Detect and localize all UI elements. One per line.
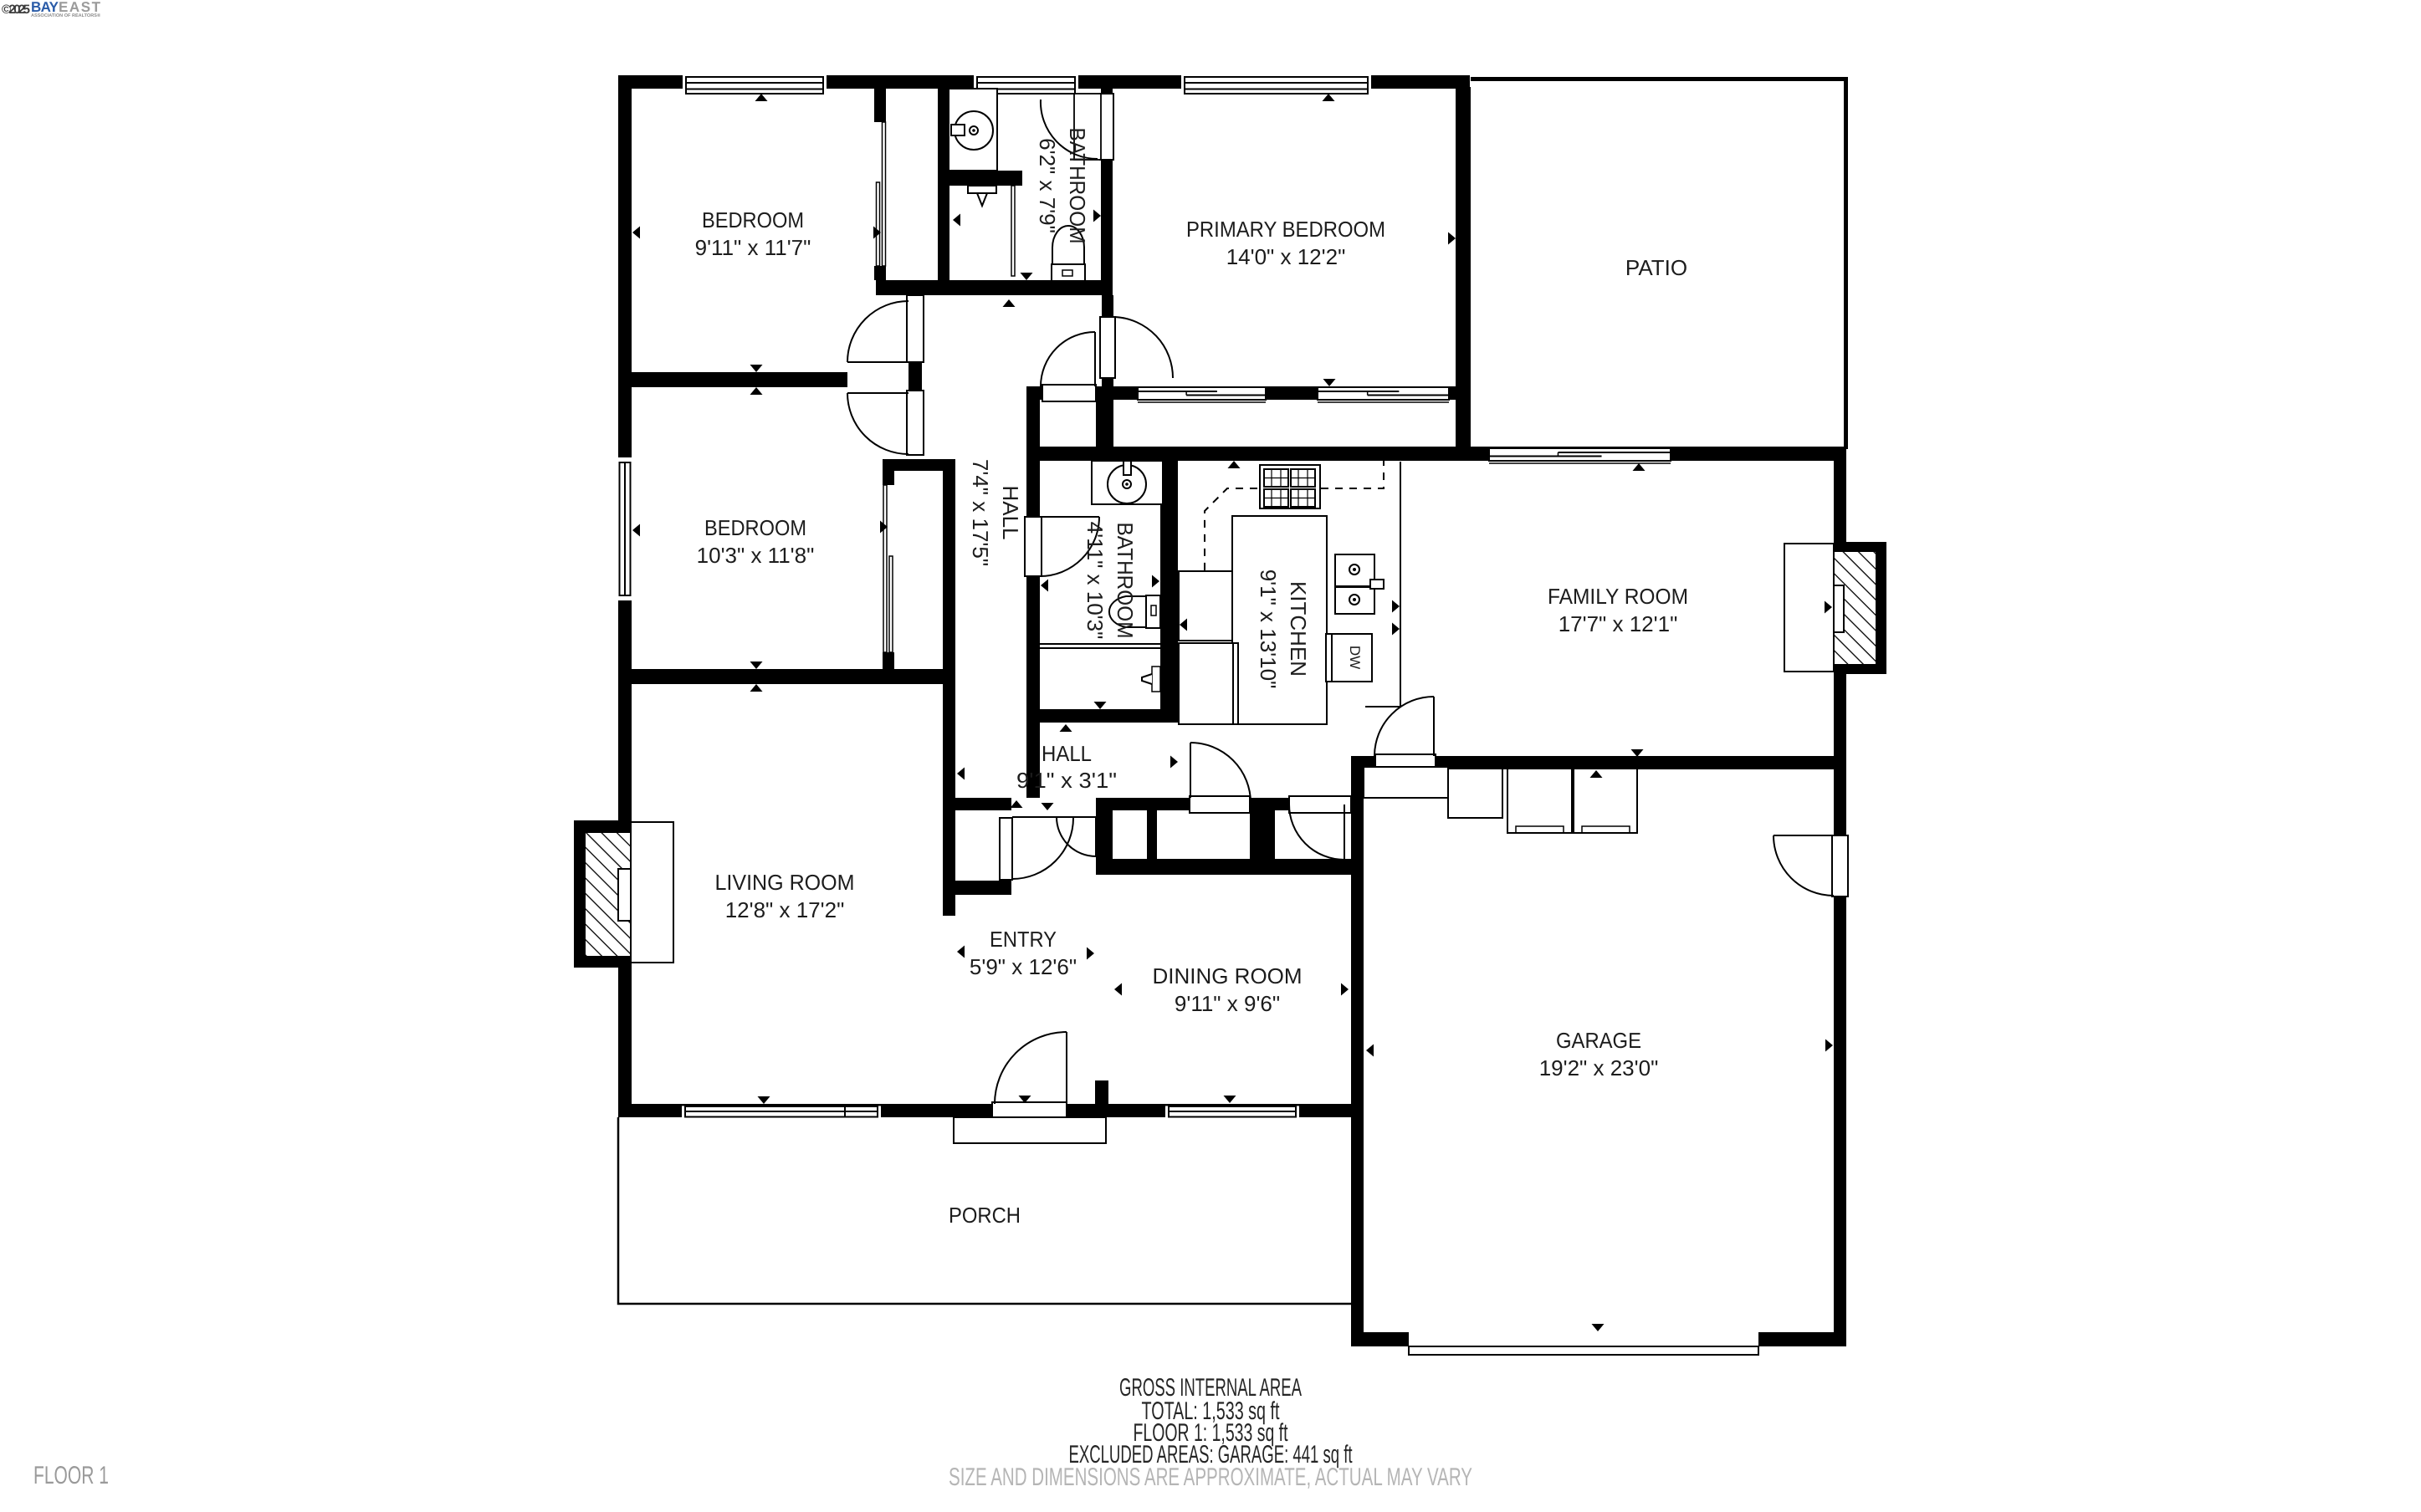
svg-text:6'2" x 7'9": 6'2" x 7'9" — [1035, 138, 1060, 233]
svg-text:ENTRY: ENTRY — [990, 927, 1057, 952]
svg-text:SIZE AND DIMENSIONS ARE APPROX: SIZE AND DIMENSIONS ARE APPROXIMATE, ACT… — [949, 1463, 1472, 1491]
svg-text:BEDROOM: BEDROOM — [704, 515, 806, 540]
svg-text:BEDROOM: BEDROOM — [702, 207, 804, 232]
svg-text:KITCHEN: KITCHEN — [1286, 581, 1311, 677]
svg-text:5'9" x 12'6": 5'9" x 12'6" — [970, 954, 1077, 979]
svg-text:FAMILY ROOM: FAMILY ROOM — [1548, 584, 1688, 609]
svg-text:17'7" x 12'1": 17'7" x 12'1" — [1559, 611, 1678, 636]
svg-text:4'11" x 10'3": 4'11" x 10'3" — [1083, 522, 1108, 640]
svg-text:9'11" x 11'7": 9'11" x 11'7" — [695, 235, 811, 260]
svg-text:14'0" x 12'2": 14'0" x 12'2" — [1226, 244, 1346, 269]
svg-text:GARAGE: GARAGE — [1556, 1028, 1641, 1053]
svg-text:12'8" x 17'2": 12'8" x 17'2" — [725, 897, 845, 922]
svg-text:10'3" x 11'8": 10'3" x 11'8" — [697, 543, 815, 568]
svg-text:BATHROOM: BATHROOM — [1113, 523, 1138, 639]
svg-text:DINING ROOM: DINING ROOM — [1152, 963, 1302, 988]
svg-text:PORCH: PORCH — [949, 1203, 1021, 1228]
svg-text:9'11" x 9'6": 9'11" x 9'6" — [1175, 991, 1280, 1016]
svg-text:HALL: HALL — [998, 485, 1023, 539]
svg-text:DW: DW — [1347, 646, 1363, 669]
svg-text:ASSOCIATION OF REALTORS®: ASSOCIATION OF REALTORS® — [31, 13, 100, 18]
svg-text:©2025: ©2025 — [2, 3, 30, 17]
svg-text:HALL: HALL — [1042, 741, 1092, 766]
svg-text:PATIO: PATIO — [1625, 255, 1687, 280]
svg-text:LIVING ROOM: LIVING ROOM — [715, 870, 855, 895]
svg-text:7'4" x 17'5": 7'4" x 17'5" — [968, 459, 993, 566]
svg-text:9'1" x 3'1": 9'1" x 3'1" — [1016, 768, 1117, 793]
svg-text:19'2" x 23'0": 19'2" x 23'0" — [1539, 1055, 1659, 1080]
svg-text:PRIMARY BEDROOM: PRIMARY BEDROOM — [1186, 217, 1385, 242]
svg-text:FLOOR 1: FLOOR 1 — [33, 1462, 109, 1489]
svg-text:9'1" x 13'10": 9'1" x 13'10" — [1256, 570, 1281, 689]
svg-text:BATHROOM: BATHROOM — [1065, 128, 1090, 244]
